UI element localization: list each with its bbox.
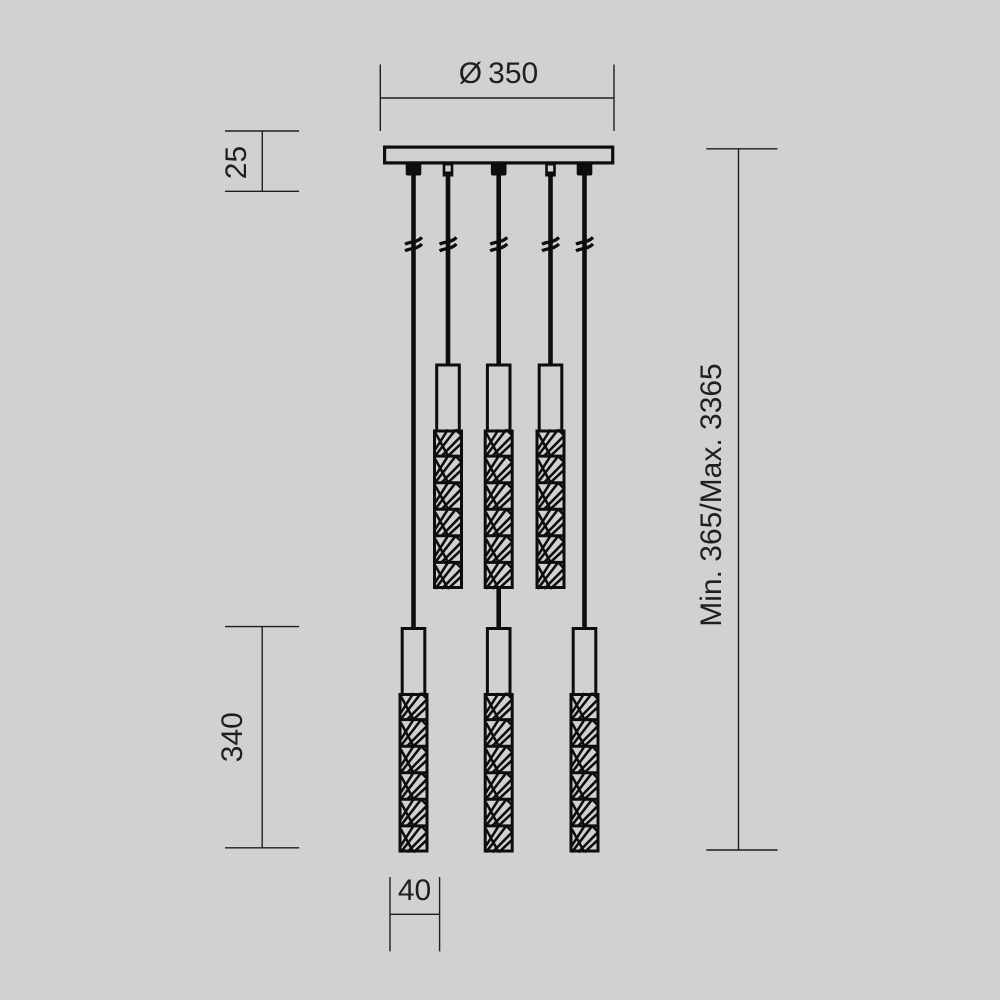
svg-text:Ø 350: Ø 350	[459, 57, 538, 90]
svg-text:40: 40	[398, 874, 431, 907]
svg-text:25: 25	[220, 146, 253, 179]
svg-text:340: 340	[216, 712, 249, 762]
svg-text:Min. 365/Max. 3365: Min. 365/Max. 3365	[695, 363, 728, 626]
